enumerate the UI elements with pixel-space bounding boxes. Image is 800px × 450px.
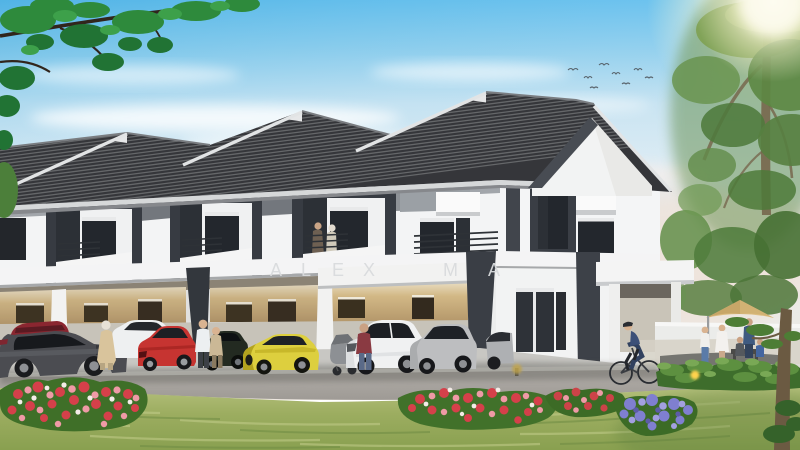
svg-text:L: L <box>301 260 311 280</box>
svg-text:M: M <box>443 260 458 280</box>
svg-text:E: E <box>332 260 344 280</box>
svg-text:X: X <box>363 260 375 280</box>
svg-text:A: A <box>488 260 500 280</box>
svg-text:A: A <box>270 260 282 280</box>
